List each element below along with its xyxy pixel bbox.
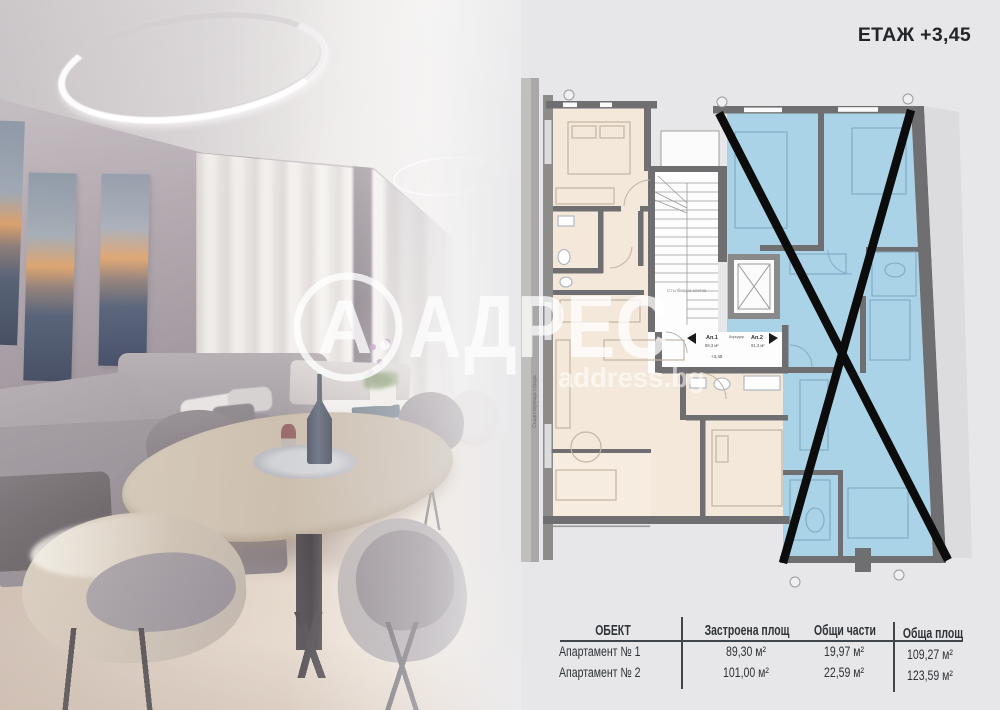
svg-text:address.bg: address.bg — [558, 362, 705, 393]
svg-text:Съществуваща сграда: Съществуваща сграда — [532, 375, 538, 428]
svg-text:91,3 м²: 91,3 м² — [751, 343, 765, 348]
svg-text:+3,45: +3,45 — [711, 354, 723, 359]
svg-text:А: А — [318, 285, 373, 370]
svg-text:Ап.1: Ап.1 — [706, 335, 718, 341]
svg-text:Коридор: Коридор — [729, 335, 744, 339]
svg-text:89,3 м²: 89,3 м² — [705, 343, 719, 348]
svg-text:Стълбищна клетка: Стълбищна клетка — [667, 288, 707, 293]
svg-text:Ап.2: Ап.2 — [751, 335, 763, 341]
